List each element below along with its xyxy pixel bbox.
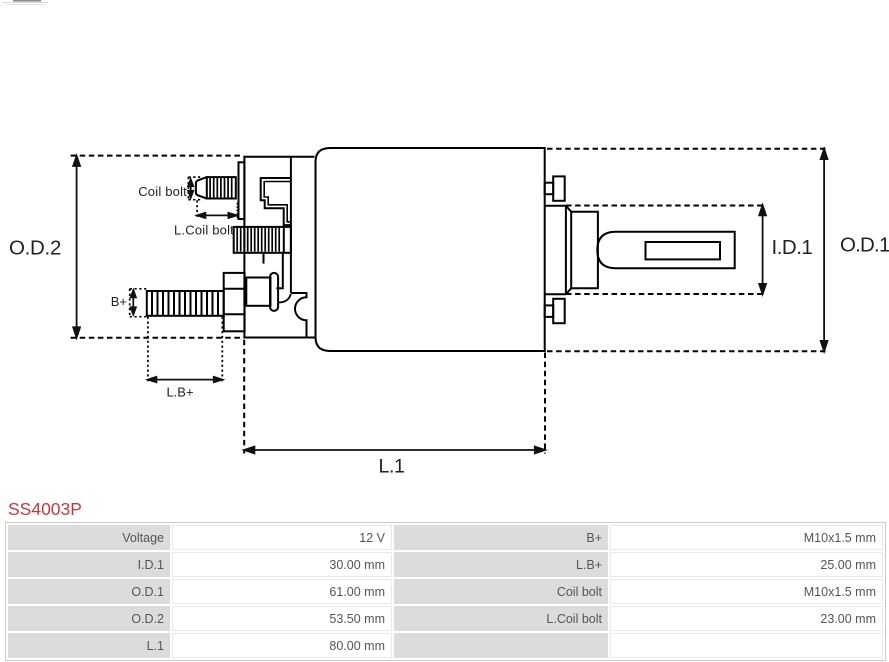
svg-text:L.1: L.1 <box>379 456 405 478</box>
svg-text:O.D.1: O.D.1 <box>840 234 889 257</box>
svg-text:B+: B+ <box>111 294 127 309</box>
svg-text:I.D.1: I.D.1 <box>772 236 813 259</box>
svg-text:Coil bolt: Coil bolt <box>138 184 187 199</box>
svg-text:O.D.2: O.D.2 <box>9 237 61 260</box>
svg-text:L.Coil bolt: L.Coil bolt <box>174 223 234 238</box>
svg-text:L.B+: L.B+ <box>166 385 193 400</box>
